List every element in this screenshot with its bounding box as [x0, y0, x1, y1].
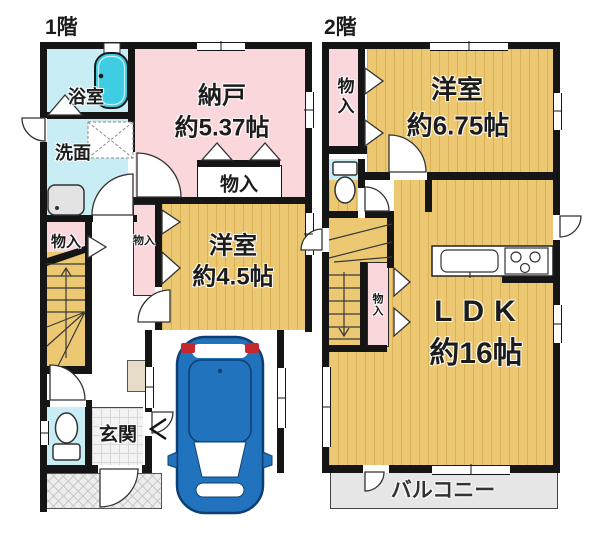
wall-segment: [128, 42, 135, 119]
wall-segment: [85, 222, 92, 372]
label-closet-in-nando: 物入: [220, 170, 258, 197]
window: [553, 305, 562, 343]
wall-segment: [387, 218, 394, 268]
door-gap: [363, 465, 389, 473]
wall-segment: [329, 345, 387, 352]
floor1-title: 1階: [45, 11, 78, 41]
label-ldk-name: LDK: [434, 295, 526, 329]
door-gap: [553, 215, 560, 240]
hall-2f: [360, 180, 394, 211]
label-western-1f-name: 洋室: [209, 226, 257, 261]
door-gap: [322, 228, 329, 252]
door-gap: [40, 118, 47, 142]
window: [305, 92, 314, 128]
car-mirror-left: [168, 452, 177, 468]
door-gap: [93, 215, 133, 222]
room-toilet-1f: [47, 407, 85, 467]
wall-segment: [360, 262, 367, 345]
window: [277, 368, 286, 428]
window: [145, 367, 154, 408]
wall-segment: [40, 42, 312, 49]
door-gap: [50, 400, 86, 407]
room-washroom-1f: [47, 119, 130, 215]
label-closet-mid-2f: 物入: [369, 293, 385, 317]
wall-segment: [277, 428, 284, 473]
door-swing: [152, 412, 173, 433]
car-mirror-right: [263, 452, 272, 468]
floor2-title: 2階: [324, 11, 357, 41]
label-ldk-size: 約16帖: [429, 328, 522, 372]
door-gap: [358, 188, 365, 218]
entrance-arrow-icon: [151, 419, 166, 439]
label-nando-name: 納戸: [198, 76, 246, 111]
wall-segment: [305, 42, 312, 332]
label-western-2f-name: 洋室: [431, 70, 483, 107]
wall-segment: [425, 180, 432, 212]
window: [40, 421, 49, 445]
door-swing: [560, 216, 581, 237]
label-bathroom: 浴室: [68, 83, 104, 109]
wall-segment: [197, 160, 280, 167]
label-entrance: 玄関: [99, 420, 137, 447]
wall-segment: [40, 366, 92, 374]
wall-segment: [128, 197, 312, 204]
wall-segment: [322, 146, 367, 154]
porch-1f: [44, 473, 162, 509]
door-gap: [128, 152, 135, 197]
label-closet-left-1f: 物入: [51, 231, 81, 252]
stairs-1f: [47, 252, 85, 366]
window: [197, 42, 245, 51]
label-closet-top-2f: 物入: [332, 77, 357, 117]
door-gap: [145, 412, 152, 436]
wall-segment: [502, 276, 560, 283]
window: [553, 93, 562, 130]
door-gap: [155, 287, 162, 322]
label-nando-size: 約5.37帖: [175, 108, 270, 143]
window: [430, 42, 508, 51]
stairs-run-2f: [329, 262, 360, 345]
wall-segment: [40, 112, 135, 119]
window: [305, 213, 314, 255]
wall-segment: [85, 404, 92, 467]
label-balcony: バルコニー: [391, 474, 496, 504]
door-gap: [98, 465, 142, 473]
wall-segment: [360, 172, 390, 180]
stairs-winder-2f: [329, 218, 394, 262]
label-closet-mid-1f: 物入: [133, 232, 155, 248]
wall-segment: [358, 42, 365, 153]
window: [322, 367, 331, 447]
car-icon: [168, 337, 272, 513]
floorplan: 1階 浴室 納戸 約5.37帖 洗面 物入 物入 物入 洋室 約4.5帖 玄関 …: [0, 0, 600, 547]
wall-segment: [427, 172, 560, 180]
wall-segment: [277, 330, 284, 370]
label-western-2f-size: 約6.75帖: [407, 106, 510, 143]
label-washroom: 洗面: [55, 139, 91, 165]
label-western-1f-size: 約4.5帖: [192, 257, 273, 292]
